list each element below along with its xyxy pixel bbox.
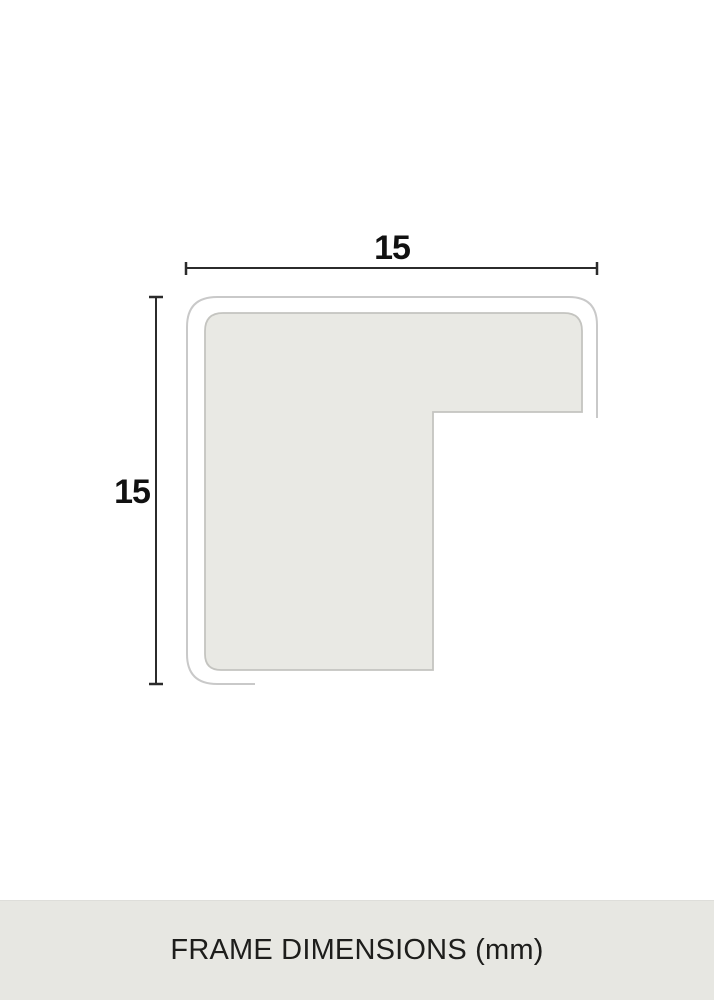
height-dimension: 15 xyxy=(114,297,163,684)
frame-profile-cross-section xyxy=(205,313,582,670)
footer-caption: FRAME DIMENSIONS (mm) xyxy=(170,934,543,967)
frame-profile-diagram: 15 15 xyxy=(0,0,714,900)
width-dimension: 15 xyxy=(186,229,597,275)
width-value: 15 xyxy=(374,229,410,267)
height-value: 15 xyxy=(114,473,150,511)
frame-dimensions-figure: 15 15 FRAME DIMENSIONS (mm) xyxy=(0,0,714,1000)
footer-bar: FRAME DIMENSIONS (mm) xyxy=(0,900,714,1000)
